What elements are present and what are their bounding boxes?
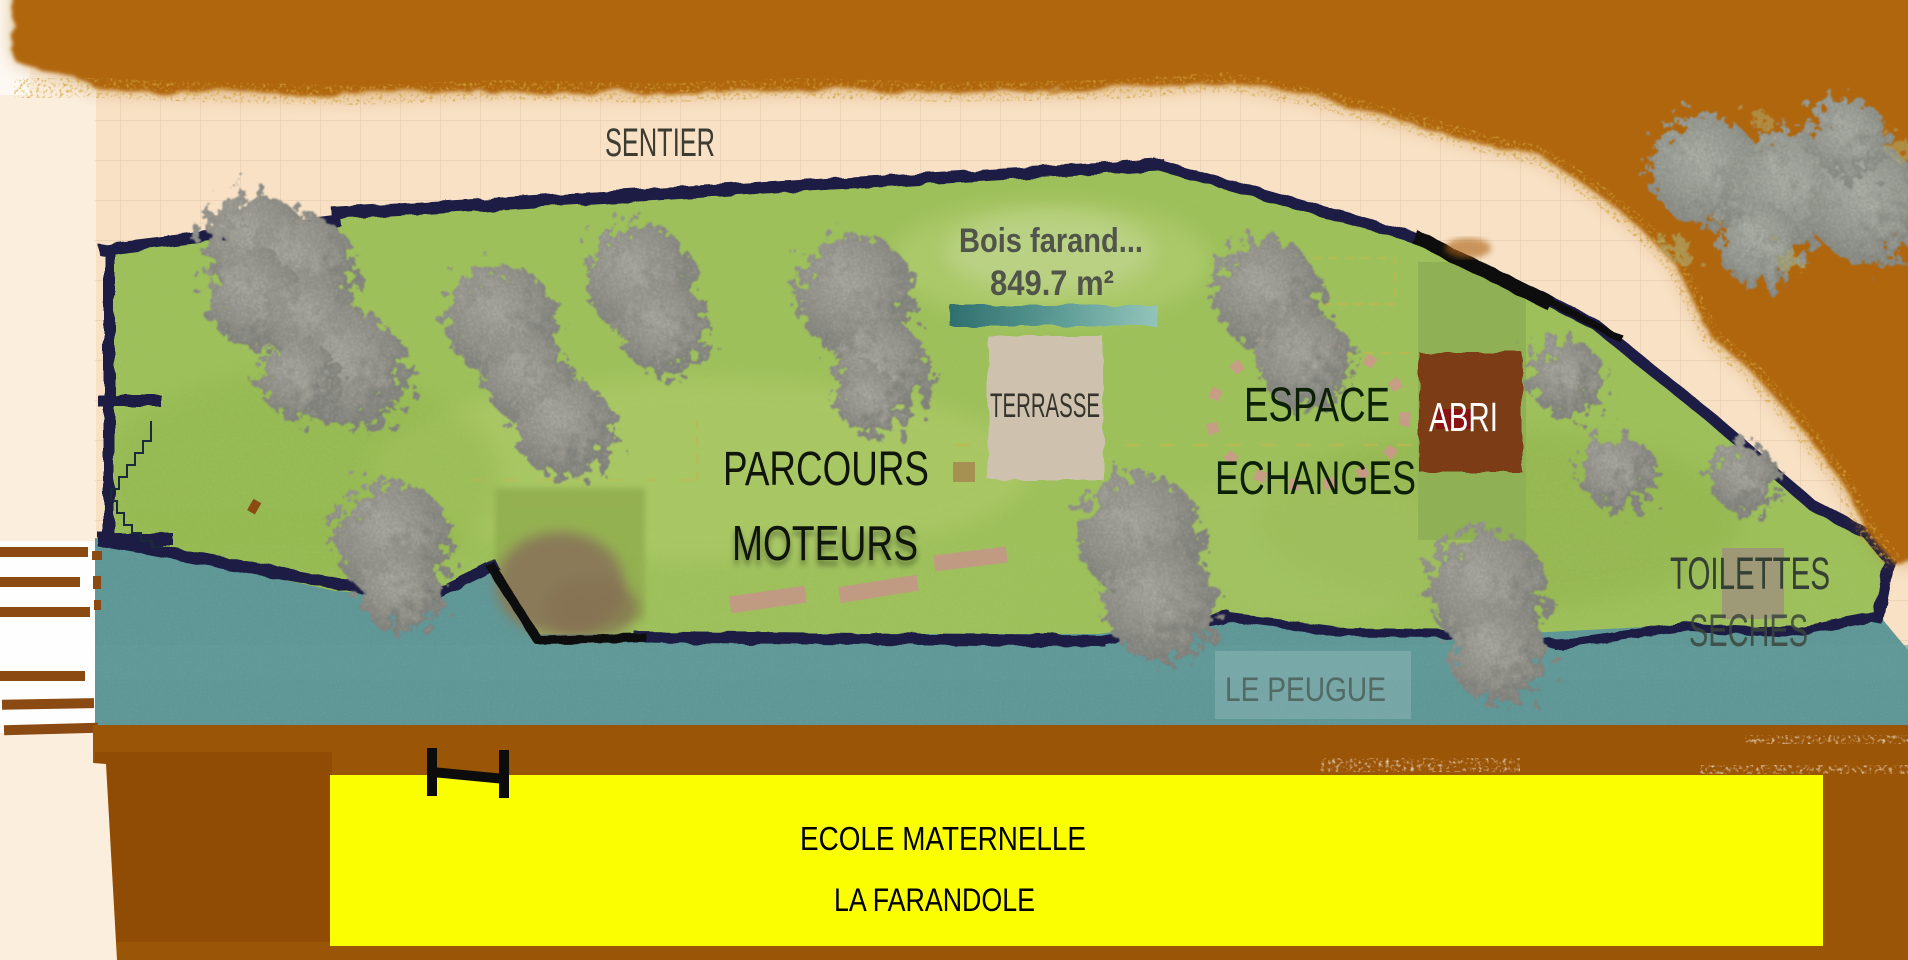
svg-text:TERRASSE: TERRASSE [990,387,1100,425]
svg-text:ECOLE MATERNELLE: ECOLE MATERNELLE [800,820,1086,857]
svg-text:ECHANGES: ECHANGES [1215,451,1416,504]
svg-text:849.7 m²: 849.7 m² [990,264,1114,303]
svg-text:SENTIER: SENTIER [605,121,715,165]
svg-text:SECHES: SECHES [1689,605,1808,656]
svg-text:LE PEUGUE: LE PEUGUE [1225,671,1386,709]
svg-text:PARCOURS: PARCOURS [723,443,929,496]
svg-text:MOTEURS: MOTEURS [732,517,918,571]
svg-text:Bois farand...: Bois farand... [959,222,1143,260]
svg-text:ABRI: ABRI [1429,394,1498,440]
svg-text:ESPACE: ESPACE [1244,379,1390,432]
svg-text:LA FARANDOLE: LA FARANDOLE [834,882,1035,918]
svg-text:TOILETTES: TOILETTES [1670,548,1830,599]
